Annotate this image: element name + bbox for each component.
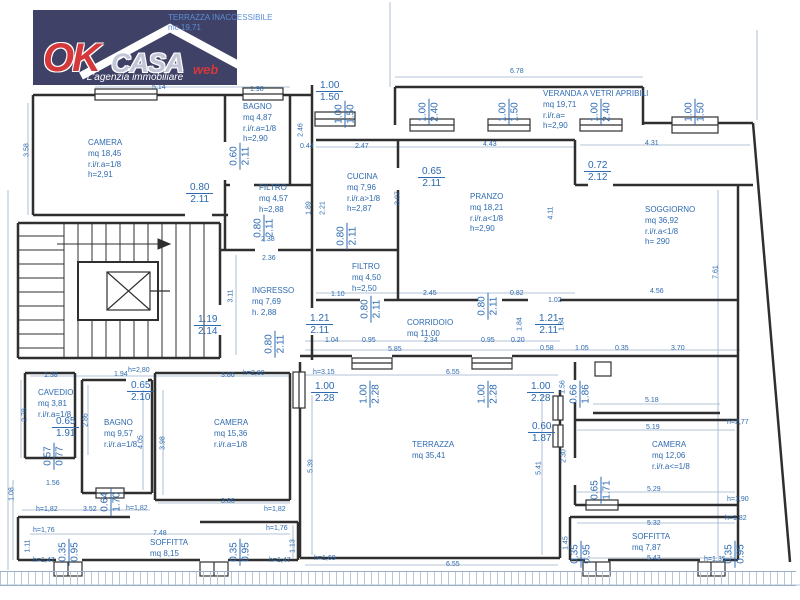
- room-label-cucina: CUCINAmq 7,96r.i/r.a>1/8h=2,87: [347, 172, 380, 215]
- terrazza-inaccessibile-note: TERRAZZA INACCESSIBILE mc 19,71: [168, 13, 272, 33]
- dimension-height: 1.86: [581, 380, 592, 407]
- door-dimension: 0.641.70: [100, 488, 123, 515]
- dimension-height: 1.70: [112, 488, 123, 515]
- room-detail: mq 36,92: [645, 216, 695, 227]
- door-dimension: 0.652.11: [418, 166, 445, 189]
- measure-label: 1.38: [44, 372, 58, 379]
- dimension-width: 1.00: [590, 98, 602, 125]
- measure-label: 2.86: [83, 413, 90, 427]
- measure-label: 3.70: [671, 345, 685, 352]
- dimension-height: 2.40: [602, 98, 613, 125]
- measure-label: 1.05: [575, 345, 589, 352]
- door-dimension: 1.002.28: [311, 381, 338, 404]
- room-name: SOGGIORNO: [645, 205, 695, 216]
- room-detail: r.i/r.a=1/8: [214, 440, 248, 451]
- measure-label: 3.58: [24, 143, 31, 157]
- door-dimension: 0.802.11: [264, 330, 287, 357]
- measure-label: 1.08: [9, 487, 16, 501]
- measure-label: 5.41: [536, 461, 543, 475]
- measure-label: 2.30: [561, 449, 568, 463]
- door-dimension: 0.802.11: [336, 222, 359, 249]
- measure-label: 3.11: [228, 289, 235, 302]
- measure-label: 2.38: [261, 236, 275, 243]
- room-detail: h= 290: [645, 237, 695, 248]
- dimension-width: 1.00: [334, 100, 346, 127]
- measure-label: 1.02: [548, 297, 562, 304]
- door-dimension: 1.212.11: [306, 313, 333, 336]
- door-dimension: 0.722.12: [584, 160, 611, 183]
- dimension-width: 0.65: [127, 380, 154, 392]
- measure-label: 0.44: [300, 143, 314, 150]
- room-detail: r.i/r.a=1/8: [104, 440, 137, 451]
- measure-label: 2.46: [298, 123, 305, 137]
- measure-label: 1.10: [331, 291, 345, 298]
- measure-label: h=2,80: [128, 367, 150, 374]
- door-dimension: 1.002.40: [418, 98, 441, 125]
- dimension-width: 0.60: [528, 421, 555, 433]
- measure-label: 2.36: [262, 255, 276, 262]
- dimension-height: 2.11: [372, 296, 383, 323]
- measure-label: 2.34: [424, 337, 438, 344]
- room-detail: r.i/r.a>1/8: [347, 194, 380, 205]
- room-detail: r.i/r.a=1/8: [88, 160, 122, 171]
- room-name: CORRIDOIO: [407, 318, 453, 329]
- dimension-width: 1.00: [316, 80, 343, 92]
- door-dimension: 0.651.71: [590, 476, 613, 503]
- measure-label: 4.11: [548, 206, 555, 219]
- door-dimension: 1.002.28: [477, 380, 500, 407]
- dimension-height: 2.11: [276, 331, 287, 358]
- dimension-width: 1.00: [498, 98, 510, 125]
- room-label-camera: CAMERAmq 12,06r.i/r.a<=1/8: [652, 440, 690, 472]
- measure-label: 1.94: [114, 371, 128, 378]
- door-dimension: 0.350.95: [724, 540, 747, 567]
- dimension-height: 2.11: [418, 178, 445, 189]
- dimension-height: 2.28: [527, 393, 554, 404]
- measure-label: 1.84: [517, 317, 524, 331]
- door-dimension: 0.570.77: [43, 442, 66, 469]
- door-dimension: 1.002.28: [359, 380, 382, 407]
- measure-label: 5.18: [645, 397, 659, 404]
- dimension-height: 2.14: [194, 326, 221, 337]
- dimension-height: 2.28: [311, 393, 338, 404]
- dimension-width: 0.64: [100, 488, 112, 515]
- measure-label: 1.45: [563, 536, 570, 550]
- measure-label: h=1,82: [725, 515, 747, 522]
- dimension-height: 2.11: [186, 194, 213, 205]
- dimension-width: 0.35: [58, 538, 70, 565]
- room-name: BAGNO: [243, 102, 276, 113]
- door-dimension: 0.651.91: [52, 416, 79, 439]
- measure-label: 7.48: [153, 530, 167, 537]
- ground-hatch: [0, 571, 796, 586]
- dimension-width: 1.00: [359, 380, 371, 407]
- measure-label: 4.31: [645, 140, 659, 147]
- room-detail: mq 7,96: [347, 183, 380, 194]
- measure-label: 1.56: [560, 380, 567, 394]
- measure-label: 4.56: [650, 288, 664, 295]
- dimension-height: 0.77: [55, 442, 66, 469]
- measure-label: 2.78: [22, 408, 29, 422]
- measure-label: 5.14: [152, 84, 166, 91]
- dimension-height: 2.10: [127, 392, 154, 403]
- logo-tagline: L'agenzia immobiliare: [33, 72, 237, 83]
- dimension-height: 0.95: [736, 540, 747, 567]
- room-detail: mq 4,87: [243, 113, 276, 124]
- room-detail: mq 12,06: [652, 451, 690, 462]
- measure-label: 6.55: [446, 561, 460, 568]
- floorplan-canvas: OK CASA web L'agenzia immobiliare TERRAZ…: [0, 0, 800, 600]
- room-detail: mq 4,50: [352, 273, 381, 284]
- dimension-height: 2.40: [430, 98, 441, 125]
- dimension-height: 1.50: [346, 100, 357, 127]
- room-name: SOFFITTA: [150, 538, 188, 549]
- room-detail: mq 15,36: [214, 429, 248, 440]
- room-label-camera: CAMERAmq 15,36r.i/r.a=1/8: [214, 418, 248, 450]
- room-detail: r.i/r.a=1/8: [243, 124, 276, 135]
- measure-label: 0.20: [511, 337, 525, 344]
- measure-label: 0.82: [510, 290, 524, 297]
- measure-label: 4.05: [138, 435, 145, 449]
- measure-label: 5.85: [388, 346, 402, 353]
- measure-label: 6.55: [446, 369, 460, 376]
- measure-label: 5.39: [308, 459, 315, 473]
- dimension-width: 0.65: [590, 476, 602, 503]
- measure-label: 1.89: [306, 201, 313, 215]
- measure-label: 6.78: [510, 68, 524, 75]
- measure-label: 2.47: [355, 143, 369, 150]
- room-name: CAVEDIO: [38, 388, 73, 399]
- dimension-width: 1.00: [311, 381, 338, 393]
- dimension-height: 2.28: [489, 380, 500, 407]
- room-label-soffitta: SOFFITTAmq 8,15: [150, 538, 188, 560]
- measure-label: 0.58: [540, 345, 554, 352]
- door-dimension: 0.602.11: [229, 142, 252, 169]
- room-name: PRANZO: [470, 192, 503, 203]
- room-detail: mq 4,57: [259, 194, 288, 205]
- dimension-width: 0.80: [264, 330, 276, 357]
- dimension-width: 0.35: [229, 538, 241, 565]
- door-dimension: 0.652.10: [127, 380, 154, 403]
- measure-label: 0.95: [481, 337, 495, 344]
- room-name: INGRESSO: [252, 286, 294, 297]
- room-label-terrazza: TERRAZZAmq 35,41: [412, 440, 454, 462]
- door-dimension: 0.802.11: [360, 295, 383, 322]
- door-dimension: 1.192.14: [194, 314, 221, 337]
- measure-label: 1.56: [46, 480, 60, 487]
- room-name: BAGNO: [104, 418, 137, 429]
- measure-label: 5.29: [647, 486, 661, 493]
- dimension-height: 2.11: [306, 325, 333, 336]
- room-detail: h=2,87: [347, 204, 380, 215]
- room-label-bagno: BAGNOmq 9,57r.i/r.a=1/8: [104, 418, 137, 450]
- door-dimension: 0.350.95: [570, 540, 593, 567]
- room-detail: h=2,90: [470, 224, 503, 235]
- measure-label: 5.19: [646, 424, 660, 431]
- measure-label: h=1,47: [269, 557, 291, 564]
- measure-label: h=2,77: [727, 419, 749, 426]
- door-dimension: 1.001.50: [334, 100, 357, 127]
- door-dimension: 1.002.40: [590, 98, 613, 125]
- dimension-width: 0.65: [52, 416, 79, 428]
- dimension-height: 0.95: [241, 538, 252, 565]
- room-detail: h. 2,88: [252, 308, 294, 319]
- door-dimension: 0.601.87: [528, 421, 555, 444]
- measure-label: 3.98: [160, 436, 167, 450]
- room-detail: mq 18,21: [470, 203, 503, 214]
- measure-label: 1.84: [559, 317, 566, 331]
- dimension-width: 0.35: [570, 540, 582, 567]
- stair-direction-arrow: [158, 239, 170, 249]
- staircase: [18, 223, 204, 358]
- dimension-width: 0.66: [569, 380, 581, 407]
- measure-label: 1.11: [25, 539, 32, 552]
- room-name: CAMERA: [88, 138, 122, 149]
- measure-label: h=1,76: [33, 527, 55, 534]
- room-label-camera: CAMERAmq 18,45r.i/r.a=1/8h=2,91: [88, 138, 122, 181]
- dimension-width: 0.35: [724, 540, 736, 567]
- measure-label: h=1,76: [266, 525, 288, 532]
- measure-label: 1.13: [290, 539, 297, 553]
- dimension-width: 0.80: [360, 295, 372, 322]
- dimension-height: 2.11: [489, 293, 500, 320]
- dimension-height: 2.28: [371, 380, 382, 407]
- room-label-ingresso: INGRESSOmq 7,69h. 2,88: [252, 286, 294, 318]
- measure-label: h=1,35: [704, 556, 726, 563]
- door-dimension: 1.002.28: [527, 381, 554, 404]
- dimension-width: 1.00: [527, 381, 554, 393]
- room-detail: h=2,50: [352, 284, 381, 295]
- room-label-bagno: BAGNOmq 4,87r.i/r.a=1/8h=2,90: [243, 102, 276, 145]
- measure-label: 1.04: [325, 337, 339, 344]
- dimension-width: 1.00: [418, 98, 430, 125]
- room-detail: r.i/r.a<=1/8: [652, 462, 690, 473]
- door-dimension: 0.350.95: [58, 538, 81, 565]
- dimension-width: 1.00: [684, 98, 696, 125]
- door-dimension: 0.802.11: [186, 182, 213, 205]
- door-dimension: 0.802.11: [477, 292, 500, 319]
- door-dimension: 1.001.50: [498, 98, 521, 125]
- measure-label: h=1,90: [727, 496, 749, 503]
- measure-label: 5.43: [647, 555, 661, 562]
- measure-label: h=3.15: [313, 369, 335, 376]
- room-label-soffitta: SOFFITTAmq 7,87: [632, 532, 670, 554]
- dimension-width: 0.80: [477, 292, 489, 319]
- dimension-width: 0.65: [418, 166, 445, 178]
- windows: [54, 88, 725, 576]
- measure-label: 0.35: [615, 345, 629, 352]
- measure-label: 0.95: [362, 337, 376, 344]
- room-label-filtro: FILTROmq 4,57h=2,88: [259, 183, 288, 215]
- terrazza-inaccessibile-area: mc 19,71: [168, 23, 272, 33]
- room-name: TERRAZZA: [412, 440, 454, 451]
- dimension-width: 0.57: [43, 442, 55, 469]
- dimension-height: 2.11: [241, 143, 252, 170]
- room-detail: mq 8,15: [150, 549, 188, 560]
- dimension-height: 0.95: [582, 540, 593, 567]
- door-dimension: 0.350.95: [229, 538, 252, 565]
- measure-label: 3.07: [395, 191, 402, 205]
- measure-label: 3.86: [221, 372, 235, 379]
- measure-label: h=1,47: [33, 557, 55, 564]
- measure-label: 5.32: [647, 520, 661, 527]
- measure-label: 2.21: [320, 201, 327, 215]
- room-detail: mq 7,69: [252, 297, 294, 308]
- door-dimension: 0.661.86: [569, 380, 592, 407]
- measure-label: h=1,82: [36, 506, 58, 513]
- room-detail: mq 18,45: [88, 149, 122, 160]
- terrazza-inaccessibile-title: TERRAZZA INACCESSIBILE: [168, 13, 272, 23]
- measure-label: h=1,69: [314, 555, 336, 562]
- room-detail: mq 7,87: [632, 543, 670, 554]
- dimension-height: 1.71: [602, 476, 613, 503]
- measure-label: h=2,80: [243, 370, 265, 377]
- measure-label: 7.61: [713, 265, 720, 279]
- room-label-soggiorno: SOGGIORNOmq 36,92r.i/r.a<1/8h= 290: [645, 205, 695, 248]
- dimension-width: 1.21: [306, 313, 333, 325]
- dimension-width: 1.19: [194, 314, 221, 326]
- room-detail: mq 9,57: [104, 429, 137, 440]
- measure-label: 4.43: [483, 141, 497, 148]
- dimension-width: 0.80: [336, 222, 348, 249]
- dimension-width: 0.72: [584, 160, 611, 172]
- dimension-height: 1.91: [52, 428, 79, 439]
- room-detail: h=2,91: [88, 170, 122, 181]
- room-name: CAMERA: [214, 418, 248, 429]
- room-name: CAMERA: [652, 440, 690, 451]
- room-detail: r.i/r.a<1/8: [645, 227, 695, 238]
- door-dimension: 1.001.50: [684, 98, 707, 125]
- measure-label: h=1,82: [126, 505, 148, 512]
- room-name: FILTRO: [259, 183, 288, 194]
- room-label-filtro: FILTROmq 4,50h=2,50: [352, 262, 381, 294]
- dimension-height: 0.95: [70, 538, 81, 565]
- dimension-height: 2.11: [348, 223, 359, 250]
- measure-label: 3.52: [83, 506, 97, 513]
- room-detail: mq 3,81: [38, 399, 73, 410]
- measure-label: 2.45: [423, 290, 437, 297]
- dimension-width: 0.60: [229, 142, 241, 169]
- room-detail: mq 35,41: [412, 451, 454, 462]
- dimension-width: 1.00: [477, 380, 489, 407]
- measure-label: h=1,82: [264, 506, 286, 513]
- room-detail: r.i/r.a<1/8: [470, 214, 503, 225]
- room-label-pranzo: PRANZOmq 18,21r.i/r.a<1/8h=2,90: [470, 192, 503, 235]
- elevator-shaft: [78, 262, 170, 320]
- dimension-height: 1.87: [528, 433, 555, 444]
- measure-label: 3.86: [221, 498, 235, 505]
- room-name: SOFFITTA: [632, 532, 670, 543]
- room-name: FILTRO: [352, 262, 381, 273]
- room-name: CUCINA: [347, 172, 380, 183]
- dimension-height: 1.50: [696, 98, 707, 125]
- dimension-height: 2.12: [584, 172, 611, 183]
- dimension-height: 1.50: [510, 98, 521, 125]
- dimension-width: 0.80: [186, 182, 213, 194]
- measure-label: 1.98: [250, 86, 264, 93]
